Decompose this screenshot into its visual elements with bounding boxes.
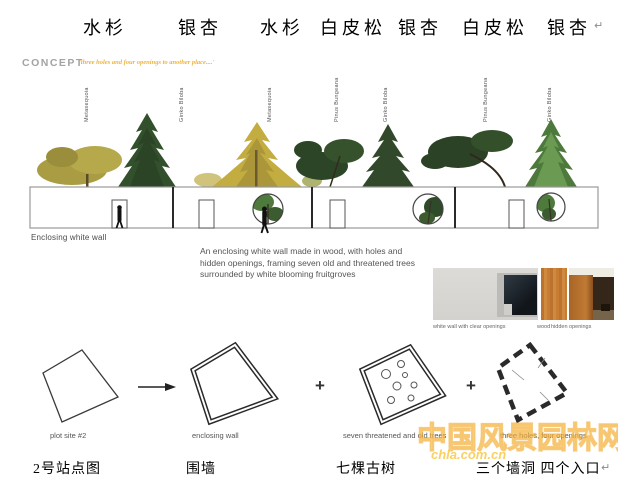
photo-door-highlight	[504, 304, 512, 315]
photo-floor	[593, 310, 614, 320]
watermark-url: chla.com.cn	[431, 447, 506, 462]
arrow-icon	[138, 383, 176, 391]
photo-hidden-openings	[569, 268, 614, 320]
photo-door-frame	[497, 273, 537, 317]
diagram-enclosing-wall	[193, 345, 275, 422]
bottom-label-old-trees: 七棵古树	[336, 458, 396, 478]
photo-wood-texture	[541, 268, 567, 320]
bottom-label-plot-site: 2号站点图	[33, 458, 101, 478]
trees-illustration	[37, 113, 577, 187]
diagram-seven-trees	[362, 347, 443, 422]
bottom-label-wall: 围墙	[186, 458, 216, 478]
diagram-holes-openings	[498, 345, 567, 420]
wall-elevation	[30, 187, 598, 233]
photo-wood-panel	[569, 275, 593, 320]
document-page: 水杉 银杏 水杉 白皮松 银杏 白皮松 银杏 ↵ CONCEPT 'three …	[0, 0, 618, 483]
wall-door-2	[199, 200, 214, 228]
photo-furniture	[601, 304, 610, 311]
wall-door-4	[509, 200, 524, 228]
wall-door-3	[330, 200, 345, 228]
photo-white-wall-openings	[433, 268, 538, 320]
concept-board-graphic	[0, 0, 618, 483]
diagram-plot-site	[43, 350, 118, 422]
